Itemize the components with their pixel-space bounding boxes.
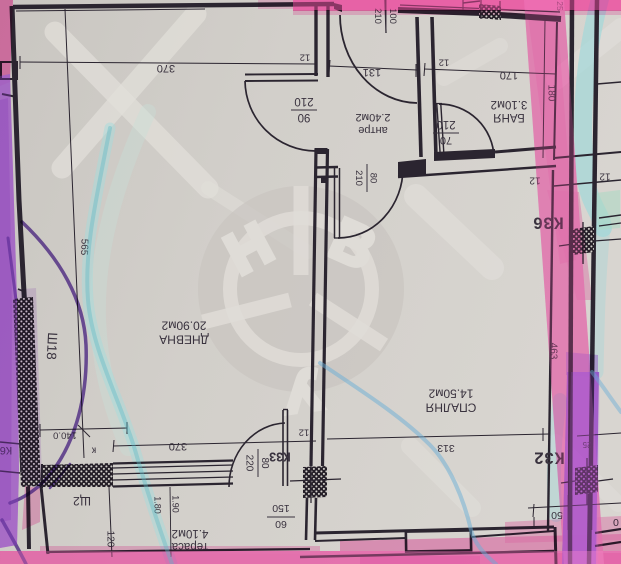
svg-text:313: 313 bbox=[437, 442, 455, 454]
svg-text:80: 80 bbox=[368, 173, 379, 184]
svg-text:12: 12 bbox=[439, 56, 450, 67]
svg-text:150: 150 bbox=[272, 502, 290, 514]
svg-text:220: 220 bbox=[244, 455, 255, 472]
svg-text:210: 210 bbox=[294, 95, 313, 107]
svg-text:120: 120 bbox=[104, 531, 115, 548]
svg-text:80: 80 bbox=[259, 457, 270, 469]
svg-text:2.40м2: 2.40м2 bbox=[355, 111, 390, 123]
svg-text:370: 370 bbox=[157, 62, 175, 74]
svg-text:12: 12 bbox=[299, 426, 310, 437]
svg-text:Ш18: Ш18 bbox=[44, 332, 60, 360]
svg-text:антре: антре bbox=[358, 124, 387, 136]
svg-text:370: 370 bbox=[169, 440, 187, 452]
svg-text:К33: К33 bbox=[269, 450, 291, 464]
svg-text:4.10м2: 4.10м2 bbox=[172, 527, 209, 539]
svg-text:14.50м2: 14.50м2 bbox=[428, 387, 473, 401]
svg-text:210: 210 bbox=[436, 118, 455, 130]
svg-text:Щ2: Щ2 bbox=[73, 494, 91, 508]
svg-text:3.10м2: 3.10м2 bbox=[491, 98, 528, 110]
svg-text:1.90: 1.90 bbox=[171, 495, 181, 513]
svg-text:90: 90 bbox=[298, 111, 311, 123]
svg-text:БАНЯ: БАНЯ bbox=[493, 111, 525, 123]
svg-text:к: к bbox=[91, 444, 96, 455]
svg-text:12: 12 bbox=[300, 51, 311, 62]
svg-text:ДНЕВНА: ДНЕВНА bbox=[159, 333, 208, 347]
svg-text:12: 12 bbox=[599, 170, 611, 181]
svg-text:СПАЛНЯ: СПАЛНЯ bbox=[426, 401, 477, 415]
svg-text:210: 210 bbox=[353, 170, 364, 186]
svg-text:170: 170 bbox=[500, 69, 518, 81]
svg-text:60: 60 bbox=[275, 518, 287, 530]
svg-text:20.90м2: 20.90м2 bbox=[161, 319, 206, 333]
svg-text:70: 70 bbox=[440, 134, 452, 146]
svg-text:131: 131 bbox=[363, 66, 381, 78]
